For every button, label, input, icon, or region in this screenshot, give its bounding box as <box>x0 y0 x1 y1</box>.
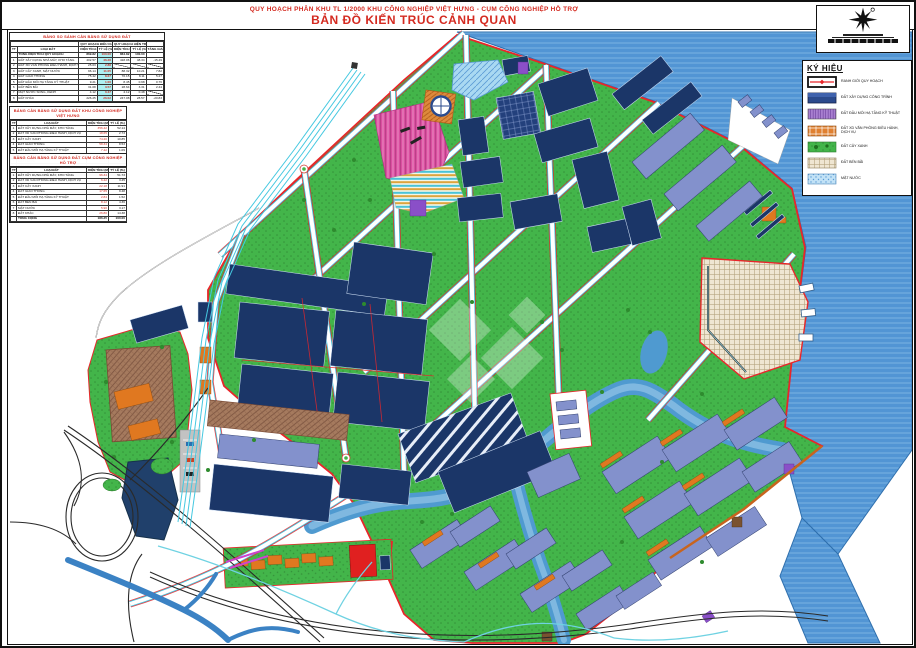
green-island <box>103 479 121 491</box>
legend-label: ĐẤT CÂY XANH <box>841 145 867 149</box>
land-use-comparison-table: BẢNG SO SÁNH CÂN BẰNG SỬ DỤNG ĐẤT QUY HO… <box>9 32 165 103</box>
legend-label: ĐẤT ĐẦU MỐI HẠ TẦNG KỸ THUẬT <box>841 112 900 116</box>
plan-sheet: QUY HOẠCH PHÂN KHU TL 1/2000 KHU CÔNG NG… <box>0 0 916 648</box>
table-cell: 100.00 <box>109 216 127 221</box>
legend-item-green: ĐẤT CÂY XANH <box>807 141 907 153</box>
green-island <box>151 458 173 474</box>
logo-text-bars <box>826 33 900 43</box>
infra-swatch-icon <box>807 108 837 120</box>
green-swatch-icon <box>807 141 837 153</box>
table-cell: 226.25 <box>79 96 97 101</box>
table-cell: -20.83 <box>146 96 163 101</box>
legend-label: ĐẤT XD VĂN PHÒNG ĐIỀU HÀNH, DỊCH VỤ <box>841 127 907 135</box>
southwest-service-strip <box>223 539 393 588</box>
legend-title: KÝ HIỆU <box>807 64 907 73</box>
company-logo <box>816 5 910 53</box>
table-cell: 247.08 <box>112 96 130 101</box>
table-title: BẢNG SO SÁNH CÂN BẰNG SỬ DỤNG ĐẤT <box>10 33 164 41</box>
legend-item-building: ĐẤT XÂY DỰNG CÔNG TRÌNH <box>807 92 907 104</box>
legend-item-boundary: RANH GIỚI QUY HOẠCH <box>807 76 907 88</box>
legend-label: MẶT NƯỚC <box>841 177 861 181</box>
star-logo-icon <box>848 7 878 33</box>
table-cell: 28.57 <box>131 96 146 101</box>
legend-label: ĐẤT XÂY DỰNG CÔNG TRÌNH <box>841 96 892 100</box>
legend-item-yard: ĐẤT BẾN BÃI <box>807 157 907 169</box>
header-divider <box>2 29 916 30</box>
legend: KÝ HIỆU RANH GIỚI QUY HOẠCH ĐẤT XÂY DỰNG… <box>802 60 912 196</box>
table-row: TỔNG CỘNG186.25100.00 <box>11 216 127 221</box>
legend-item-infra: ĐẤT ĐẦU MỐI HẠ TẦNG KỸ THUẬT <box>807 108 907 120</box>
table-row: 8ĐẤT KHÁC226.2526.02247.0828.57-20.83 <box>11 96 164 101</box>
table-title: BẢNG CÂN BẰNG SỬ DỤNG ĐẤT KHU CÔNG NGHIỆ… <box>10 107 126 120</box>
sheet-header: QUY HOẠCH PHÂN KHU TL 1/2000 KHU CÔNG NG… <box>7 3 821 29</box>
legend-item-office: ĐẤT XD VĂN PHÒNG ĐIỀU HÀNH, DỊCH VỤ <box>807 125 907 137</box>
water-swatch-icon <box>807 173 837 185</box>
legend-item-water: MẶT NƯỚC <box>807 173 907 185</box>
table-cell: ĐẤT KHÁC <box>17 96 79 101</box>
yard-swatch-icon <box>807 157 837 169</box>
table-cell: 26.02 <box>97 96 112 101</box>
support-cluster-table: BẢNG CÂN BẰNG SỬ DỤNG ĐẤT CỤM CÔNG NGHIỆ… <box>9 153 127 223</box>
table-cell: TỔNG CỘNG <box>17 216 87 221</box>
plan-subtitle: QUY HOẠCH PHÂN KHU TL 1/2000 KHU CÔNG NG… <box>7 3 821 13</box>
building-swatch-icon <box>807 92 837 104</box>
table-title: BẢNG CÂN BẰNG SỬ DỤNG ĐẤT CỤM CÔNG NGHIỆ… <box>10 154 126 167</box>
legend-label: RANH GIỚI QUY HOẠCH <box>841 80 883 84</box>
boundary-swatch-icon <box>807 76 837 88</box>
office-swatch-icon <box>807 125 837 137</box>
map-canvas <box>8 30 912 644</box>
table-cell: 186.25 <box>87 216 109 221</box>
page-title: BẢN ĐỒ KIẾN TRÚC CẢNH QUAN <box>7 13 821 27</box>
water-plant-roundabout <box>422 90 456 124</box>
legend-label: ĐẤT BẾN BÃI <box>841 161 863 165</box>
